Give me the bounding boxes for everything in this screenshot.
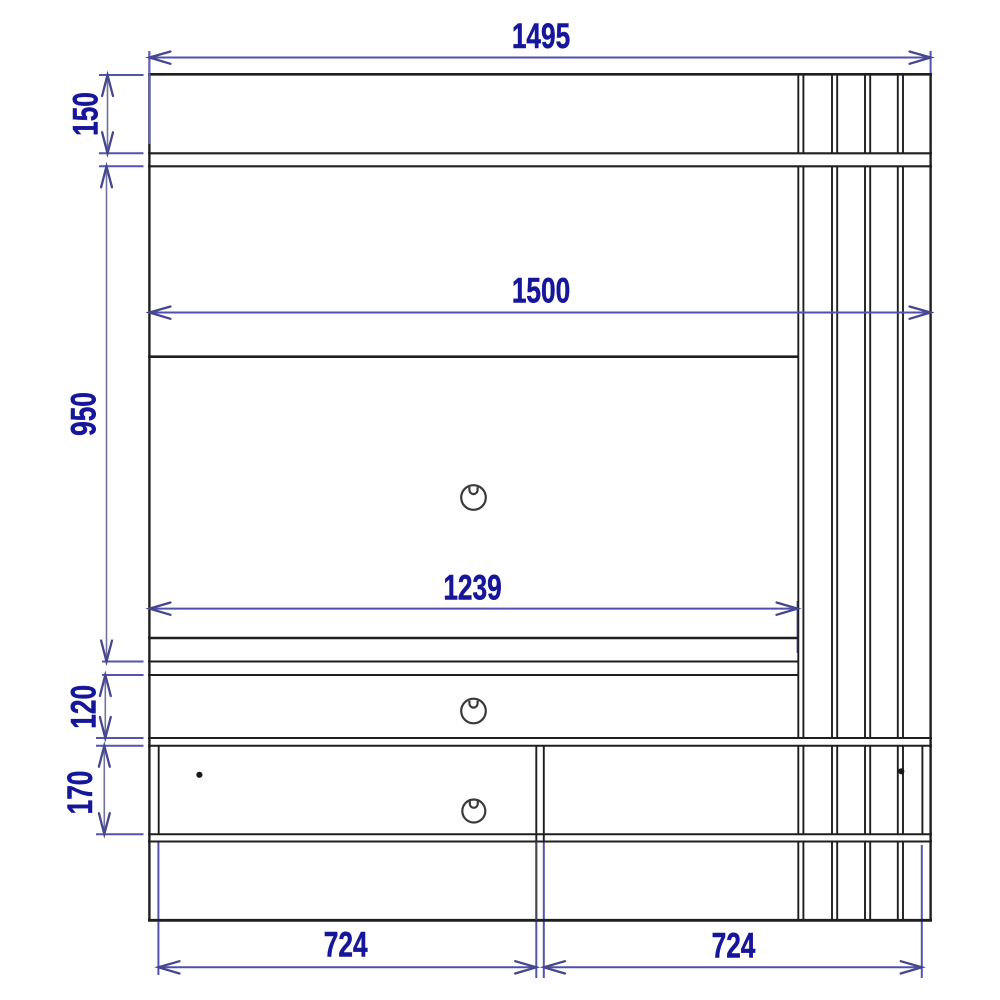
svg-text:724: 724 [324,925,368,965]
svg-text:1495: 1495 [512,16,570,56]
svg-text:724: 724 [712,926,756,966]
svg-text:1500: 1500 [512,271,570,311]
svg-text:950: 950 [64,392,104,436]
svg-text:120: 120 [64,685,104,729]
svg-text:1239: 1239 [443,568,501,608]
svg-text:150: 150 [66,92,106,136]
svg-text:170: 170 [60,771,100,815]
